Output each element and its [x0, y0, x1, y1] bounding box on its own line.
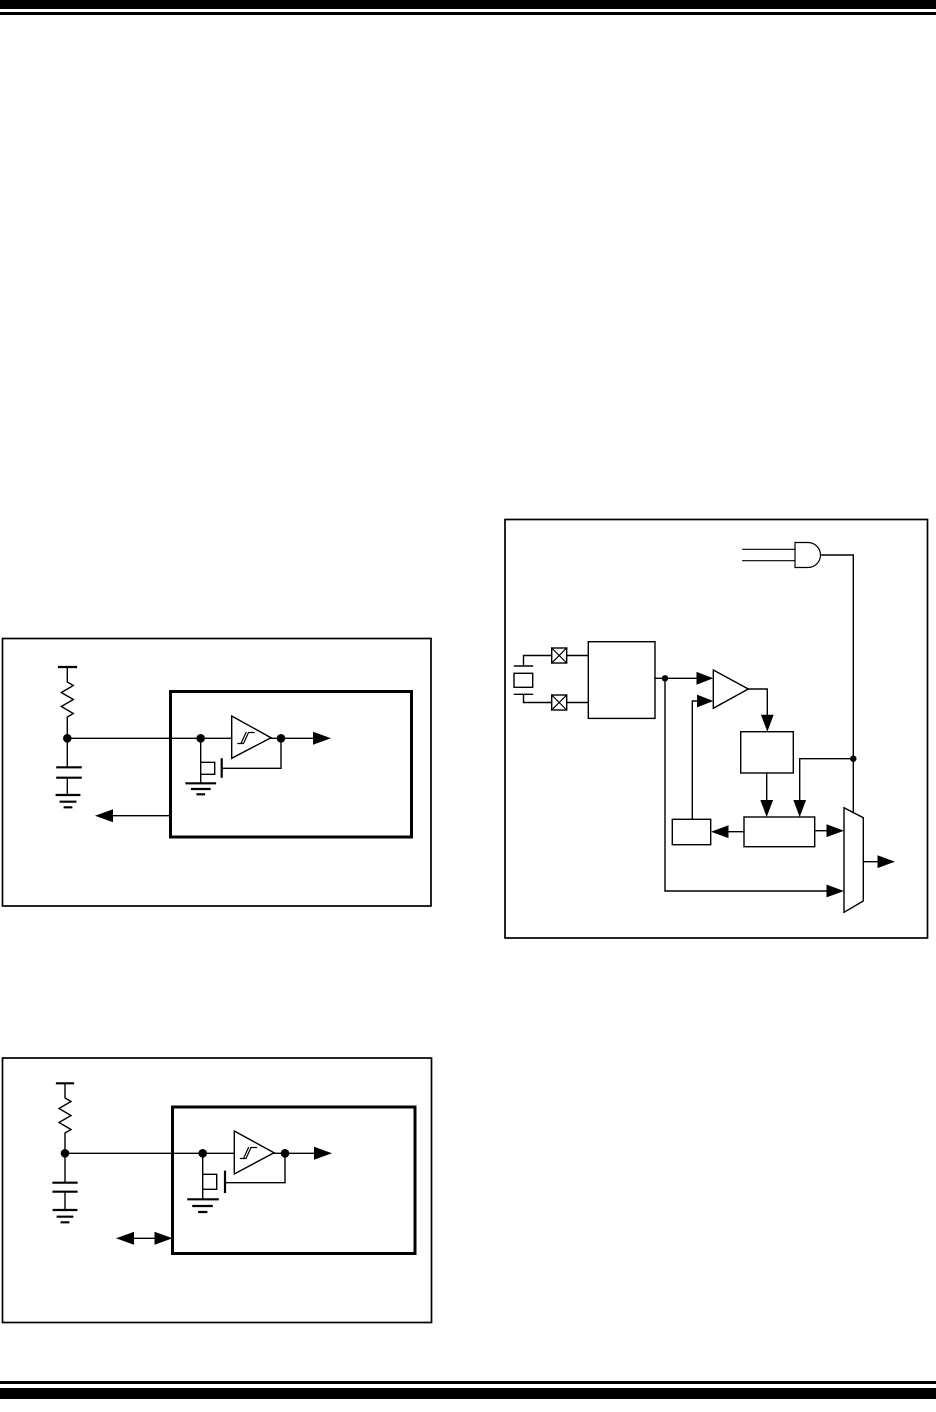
- hysteresis-icon: [238, 733, 254, 744]
- enable-branch-wire: [800, 759, 854, 801]
- wide-register-block: [744, 817, 815, 847]
- datasheet-page: [0, 0, 936, 1412]
- divider-block: [741, 732, 794, 773]
- pad-wires: [567, 656, 589, 703]
- external-resistor: [61, 667, 73, 738]
- figure-oscillator-block-diagram: [505, 520, 928, 939]
- arrow-into-buffer-top: [697, 672, 714, 685]
- io-arrow-right: [155, 1232, 173, 1245]
- feedback-mosfet-gate: [203, 1153, 217, 1199]
- buffer-output-wire: [748, 689, 767, 715]
- arrow-into-mux-bottom: [827, 885, 845, 898]
- small-block: [672, 819, 710, 844]
- and-gate-inputs: [743, 549, 795, 560]
- figure-rc-clock-circuit-bottom: [3, 1058, 432, 1323]
- footer-rule-thick: [0, 1388, 936, 1399]
- arrow-into-mux-top: [827, 824, 845, 837]
- internal-clock-arrow: [314, 1147, 332, 1160]
- schmitt-trigger-buffer: [234, 1131, 274, 1174]
- arrow-into-register-right: [793, 800, 806, 817]
- ground-symbol: [54, 1210, 77, 1222]
- mux-output-arrow: [878, 855, 896, 868]
- feedback-wire: [222, 738, 281, 768]
- schmitt-trigger-buffer: [232, 716, 271, 758]
- figure-border-box: [3, 1058, 432, 1323]
- mosfet-ground: [188, 1199, 217, 1212]
- arrow-into-buffer-bottom: [697, 695, 713, 708]
- osc2-pad: [552, 695, 567, 710]
- diagram-layer: [0, 0, 936, 1412]
- crystal: [514, 673, 533, 687]
- device-boundary-box: [171, 692, 412, 838]
- osc1-pad: [552, 648, 567, 663]
- output-mux: [844, 808, 863, 913]
- internal-clock-arrow: [313, 732, 331, 745]
- figure-rc-clock-circuit-top: [3, 639, 432, 907]
- io-arrow-left: [116, 1232, 134, 1245]
- bypass-wire: [665, 678, 827, 891]
- hysteresis-icon: [241, 1148, 257, 1159]
- and-gate: [795, 543, 821, 568]
- arrow-into-divider: [761, 715, 774, 732]
- external-capacitor: [57, 767, 80, 777]
- buffer-triangle: [713, 670, 748, 708]
- device-boundary-box: [173, 1107, 416, 1254]
- mosfet-ground: [187, 783, 216, 794]
- clkout-arrow-left: [95, 809, 113, 822]
- ground-symbol: [57, 795, 80, 807]
- arrow-into-small-block: [711, 825, 729, 838]
- oscillator-block: [588, 642, 655, 719]
- external-capacitor: [54, 1183, 77, 1192]
- feedback-mosfet-gate: [201, 738, 215, 783]
- external-resistor: [59, 1083, 71, 1153]
- footer-rule-thin: [0, 1381, 936, 1384]
- and-output-wire: [821, 555, 853, 813]
- figure-border-box: [505, 520, 928, 939]
- arrow-into-register-left: [760, 800, 773, 817]
- small-block-feedback-wire: [692, 701, 697, 819]
